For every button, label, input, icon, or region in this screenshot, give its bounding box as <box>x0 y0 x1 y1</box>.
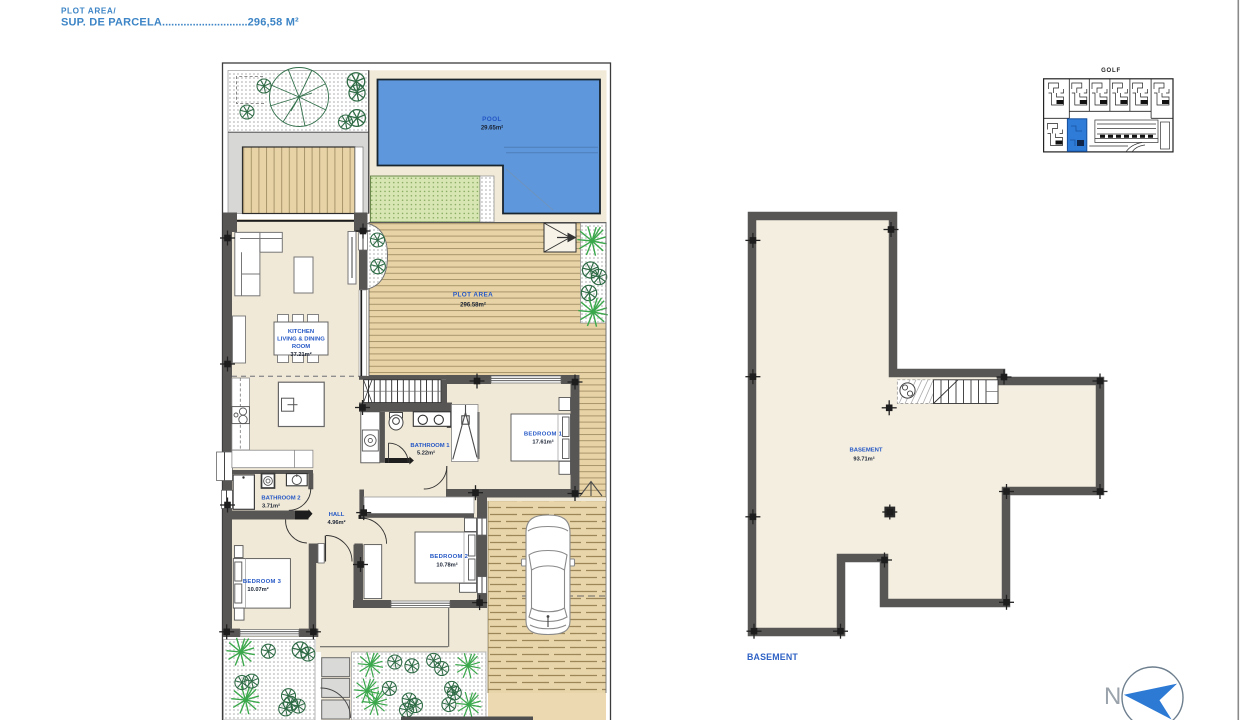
svg-text:BEDROOM 2: BEDROOM 2 <box>430 554 469 560</box>
svg-text:N: N <box>1104 683 1121 710</box>
svg-text:BATHROOM 2: BATHROOM 2 <box>261 496 301 502</box>
svg-text:SUP. DE PARCELA...............: SUP. DE PARCELA.........................… <box>61 17 299 29</box>
svg-text:93.71m²: 93.71m² <box>853 456 874 463</box>
svg-text:PLOT AREA/: PLOT AREA/ <box>61 7 116 16</box>
svg-text:GOLF: GOLF <box>1101 68 1121 74</box>
svg-text:KITCHEN: KITCHEN <box>288 329 314 335</box>
svg-text:37.21m²: 37.21m² <box>290 351 311 358</box>
svg-text:3.71m²: 3.71m² <box>262 503 280 510</box>
svg-text:29.65m²: 29.65m² <box>481 125 503 132</box>
svg-text:BASEMENT: BASEMENT <box>747 652 798 662</box>
svg-text:BATHROOM 1: BATHROOM 1 <box>410 443 450 449</box>
svg-text:ROOM: ROOM <box>292 344 310 350</box>
svg-text:17.61m²: 17.61m² <box>532 439 553 446</box>
svg-text:LIVING & DINING: LIVING & DINING <box>277 337 325 343</box>
svg-text:BEDROOM 3: BEDROOM 3 <box>243 579 282 585</box>
svg-text:PLOT AREA: PLOT AREA <box>453 292 493 299</box>
svg-text:10.78m²: 10.78m² <box>436 562 457 569</box>
svg-text:BEDROOM 1: BEDROOM 1 <box>524 432 563 438</box>
svg-text:5.22m²: 5.22m² <box>417 450 435 457</box>
svg-text:10.07m²: 10.07m² <box>247 586 268 593</box>
svg-text:BASEMENT: BASEMENT <box>849 448 882 454</box>
svg-text:POOL: POOL <box>482 116 502 123</box>
svg-text:HALL: HALL <box>329 512 345 518</box>
svg-text:296.58m²: 296.58m² <box>460 302 486 309</box>
svg-text:4.96m²: 4.96m² <box>327 519 345 526</box>
